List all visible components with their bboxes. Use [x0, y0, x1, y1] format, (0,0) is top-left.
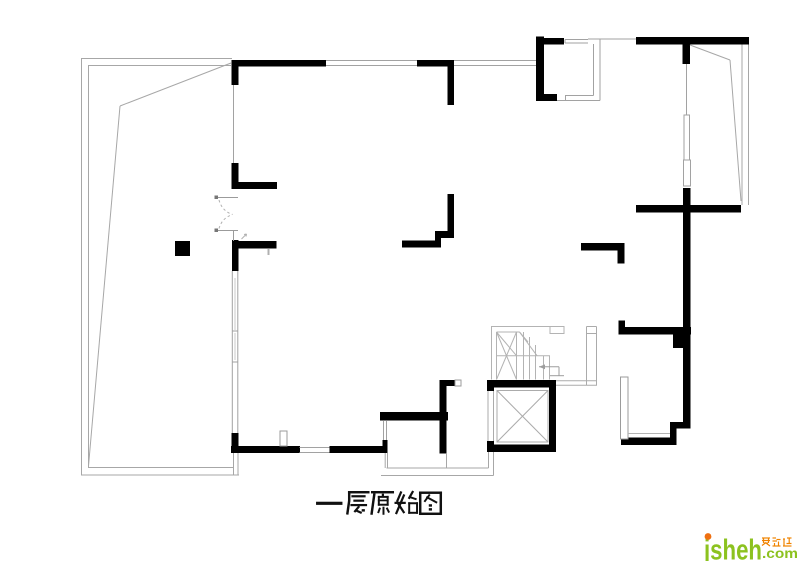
- svg-text:.com: .com: [762, 546, 798, 561]
- svg-text:jsheh: jsheh: [703, 535, 762, 561]
